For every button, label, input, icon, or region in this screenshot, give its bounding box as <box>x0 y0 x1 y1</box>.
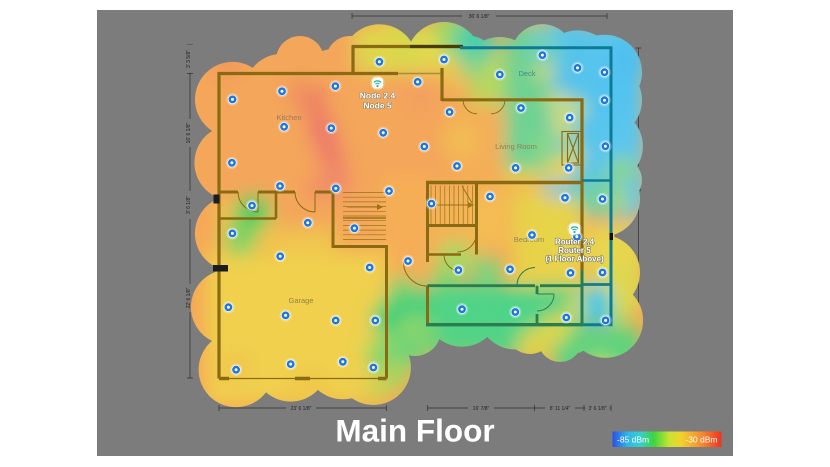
svg-text:-30 dBm: -30 dBm <box>685 435 717 445</box>
svg-text:8' 11 1/4": 8' 11 1/4" <box>550 406 571 412</box>
svg-text:(1 Floor Above): (1 Floor Above) <box>545 255 604 264</box>
svg-text:3' 3 5/8": 3' 3 5/8" <box>186 50 192 68</box>
svg-text:16' 6 1/8": 16' 6 1/8" <box>186 122 192 143</box>
svg-text:23' 6 1/8": 23' 6 1/8" <box>291 406 312 412</box>
svg-text:3' 6 1/8": 3' 6 1/8" <box>186 196 192 214</box>
svg-text:Node 5: Node 5 <box>363 101 392 111</box>
svg-text:Deck: Deck <box>518 69 535 78</box>
svg-text:-85 dBm: -85 dBm <box>617 435 649 445</box>
svg-text:Node 2.4: Node 2.4 <box>360 91 396 101</box>
svg-text:Kitchen: Kitchen <box>276 113 301 122</box>
svg-text:Main Floor: Main Floor <box>335 413 494 449</box>
svg-text:36' 6 1/8": 36' 6 1/8" <box>469 14 490 20</box>
svg-text:Living Room: Living Room <box>495 142 537 151</box>
svg-text:3' 6 1/8": 3' 6 1/8" <box>588 406 606 412</box>
svg-text:16' 7/8": 16' 7/8" <box>473 406 490 412</box>
svg-text:Garage: Garage <box>288 296 313 305</box>
